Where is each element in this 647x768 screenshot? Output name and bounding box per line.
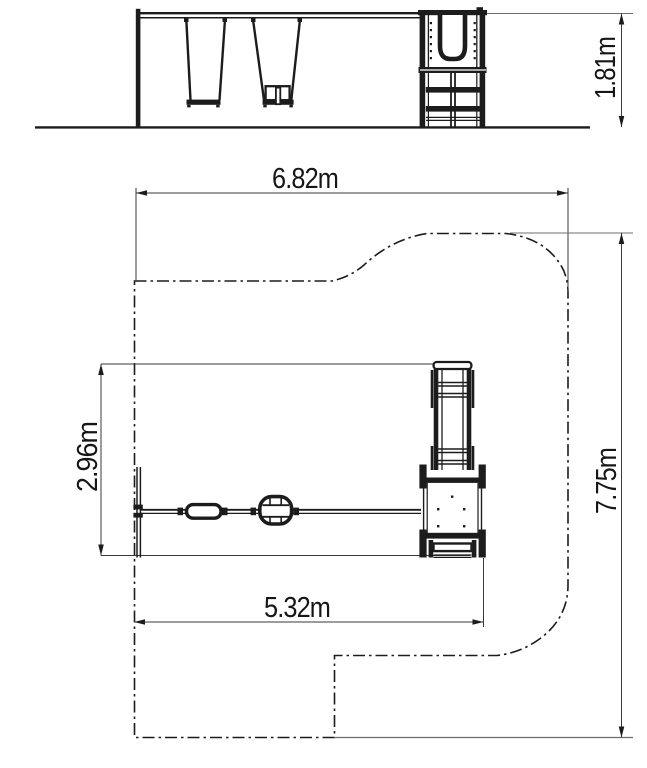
safety-zone-boundary <box>135 234 569 738</box>
tower-ladder-elevation <box>426 73 480 127</box>
flat-seat-plan <box>187 505 222 519</box>
dim-label-height: 1.81m <box>590 37 622 99</box>
playground-technical-drawing: 1.81m 6.82m 7.75m <box>0 0 647 768</box>
plan-view: 6.82m 7.75m 2.96m 5.32m <box>72 163 633 738</box>
dim-label-zone-width: 6.82m <box>272 163 338 195</box>
swing-seat-baby-elevation <box>253 20 300 108</box>
equipment-width-dimension: 5.32m <box>134 558 484 627</box>
height-dimension: 1.81m <box>487 14 633 128</box>
slide-chute-end-profile <box>440 15 465 59</box>
elevation-view: 1.81m <box>35 7 633 127</box>
swing-frame-post <box>136 9 141 128</box>
dim-label-equipment-width: 5.32m <box>264 592 330 624</box>
swing-set-plan <box>133 467 423 558</box>
baby-seat-plan <box>260 497 292 524</box>
slide-tower-elevation <box>418 7 487 127</box>
equipment-depth-dimension: 2.96m <box>72 364 470 556</box>
dim-label-equipment-depth: 2.96m <box>72 422 104 492</box>
drawing-sheet: 1.81m 6.82m 7.75m <box>0 0 647 768</box>
slide-top-cap <box>434 362 472 369</box>
ladder-plan <box>429 540 477 558</box>
swing-seat-flat-elevation <box>186 20 225 108</box>
dim-label-zone-depth: 7.75m <box>591 448 623 514</box>
slide-plan <box>432 362 473 478</box>
